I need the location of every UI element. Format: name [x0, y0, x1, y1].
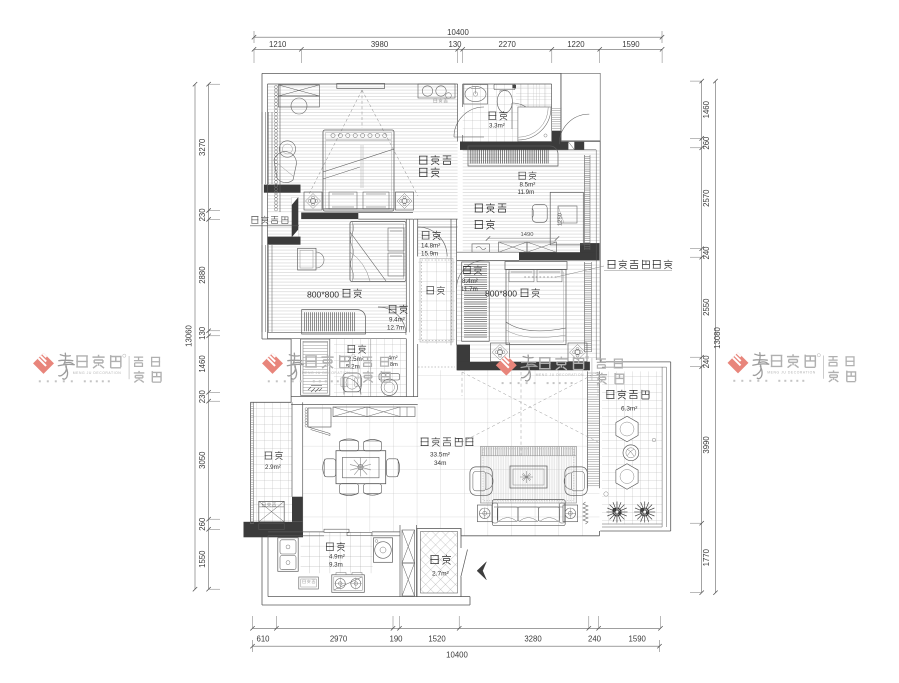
- svg-text:3990: 3990: [702, 436, 711, 454]
- svg-text:2550: 2550: [702, 298, 711, 316]
- svg-text:230: 230: [198, 390, 207, 404]
- svg-text:2570: 2570: [702, 189, 711, 207]
- svg-text:12.7m: 12.7m: [387, 325, 404, 332]
- svg-text:3270: 3270: [198, 138, 207, 156]
- svg-text:1210: 1210: [269, 40, 287, 49]
- svg-text:260: 260: [198, 517, 207, 531]
- svg-text:230: 230: [198, 208, 207, 222]
- svg-text:15.9m: 15.9m: [421, 250, 438, 257]
- svg-text:10400: 10400: [447, 28, 469, 37]
- svg-text:1490: 1490: [521, 232, 534, 238]
- svg-text:130: 130: [198, 326, 207, 340]
- svg-text:1250: 1250: [558, 213, 564, 226]
- svg-text:11.9m: 11.9m: [518, 189, 535, 196]
- svg-text:1770: 1770: [702, 548, 711, 566]
- svg-text:2270: 2270: [499, 40, 517, 49]
- svg-text:4m²: 4m²: [388, 356, 398, 362]
- svg-text:9.3m: 9.3m: [329, 561, 343, 568]
- svg-text:14.8m²: 14.8m²: [421, 242, 440, 249]
- svg-text:240: 240: [702, 355, 711, 369]
- svg-text:8.5m²: 8.5m²: [520, 182, 536, 189]
- svg-text:34m: 34m: [434, 460, 446, 467]
- svg-text:190: 190: [389, 635, 403, 644]
- svg-text:1460: 1460: [198, 355, 207, 373]
- svg-text:3980: 3980: [371, 40, 389, 49]
- svg-text:800*800: 800*800: [307, 290, 339, 300]
- svg-text:13080: 13080: [713, 326, 722, 348]
- svg-text:33.5m²: 33.5m²: [430, 452, 450, 459]
- svg-text:4.9m²: 4.9m²: [329, 554, 345, 561]
- svg-text:1550: 1550: [198, 550, 207, 568]
- svg-text:240: 240: [702, 246, 711, 260]
- svg-text:13060: 13060: [185, 324, 194, 346]
- svg-text:3.3m²: 3.3m²: [489, 123, 505, 130]
- svg-text:9.4m²: 9.4m²: [389, 317, 405, 324]
- svg-text:10400: 10400: [446, 651, 468, 660]
- svg-text:1590: 1590: [629, 635, 647, 644]
- svg-text:2.7m²: 2.7m²: [432, 571, 450, 578]
- svg-text:6.3m²: 6.3m²: [621, 405, 637, 412]
- svg-text:3050: 3050: [198, 451, 207, 469]
- svg-text:1460: 1460: [702, 100, 711, 118]
- svg-text:130: 130: [448, 40, 462, 49]
- svg-text:2880: 2880: [198, 266, 207, 284]
- svg-text:2.9m²: 2.9m²: [265, 464, 281, 471]
- svg-text:11.7m: 11.7m: [461, 286, 478, 293]
- svg-text:800*800: 800*800: [485, 289, 517, 299]
- svg-text:240: 240: [588, 635, 602, 644]
- svg-text:260: 260: [702, 136, 711, 150]
- svg-text:2970: 2970: [330, 635, 348, 644]
- svg-text:8.4m²: 8.4m²: [462, 278, 478, 285]
- svg-text:3280: 3280: [524, 635, 542, 644]
- svg-text:1220: 1220: [567, 40, 585, 49]
- svg-text:610: 610: [256, 635, 270, 644]
- svg-text:1520: 1520: [428, 635, 446, 644]
- svg-text:1590: 1590: [622, 40, 640, 49]
- svg-text:8m: 8m: [390, 362, 398, 368]
